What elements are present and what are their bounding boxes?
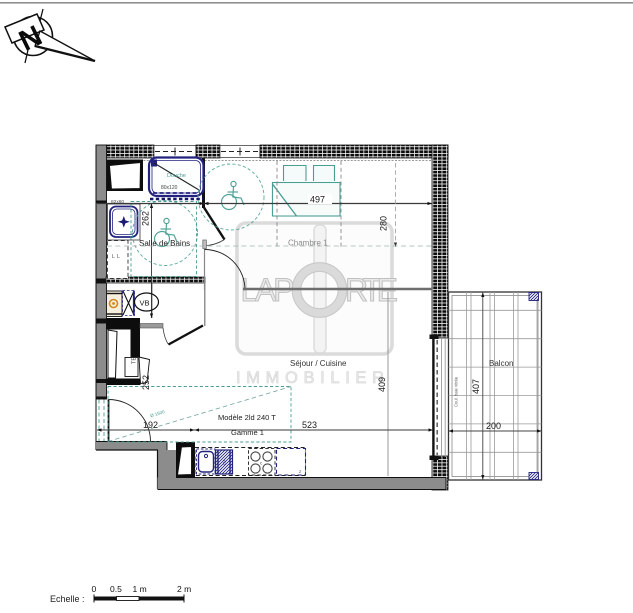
svg-text:LL: LL <box>112 254 122 260</box>
svg-text:0.5: 0.5 <box>110 584 122 594</box>
svg-text:523: 523 <box>302 420 317 430</box>
svg-text:280: 280 <box>379 216 389 231</box>
svg-text:200: 200 <box>486 421 501 431</box>
svg-text:TE: TE <box>132 357 138 364</box>
svg-text:409: 409 <box>377 377 387 392</box>
svg-text:Gamme 1: Gamme 1 <box>231 428 264 437</box>
svg-text:262: 262 <box>141 211 151 226</box>
svg-text:252: 252 <box>141 375 151 390</box>
svg-text:Séjour / Cuisine: Séjour / Cuisine <box>290 359 347 368</box>
svg-text:80x120: 80x120 <box>161 185 178 191</box>
svg-text:192: 192 <box>143 420 158 430</box>
svg-text:Douche: Douche <box>167 173 186 179</box>
svg-text:VB: VB <box>140 299 150 308</box>
svg-text:Modèle 2ld 240 T: Modèle 2ld 240 T <box>218 413 276 422</box>
svg-text:IMMOBILIER: IMMOBILIER <box>236 369 384 387</box>
svg-text:Echelle :: Echelle : <box>50 594 85 604</box>
svg-text:Balcon: Balcon <box>489 359 513 368</box>
svg-text:Coul. baie vitrée: Coul. baie vitrée <box>454 376 459 407</box>
svg-text:1 m: 1 m <box>133 584 147 594</box>
svg-text:LV: LV <box>222 460 227 465</box>
svg-text:497: 497 <box>310 195 325 205</box>
svg-text:Salle de Bains: Salle de Bains <box>139 239 190 248</box>
svg-text:407: 407 <box>471 379 481 394</box>
svg-text:82x60: 82x60 <box>111 199 124 205</box>
svg-text:0: 0 <box>92 584 97 594</box>
svg-text:2 m: 2 m <box>177 584 191 594</box>
